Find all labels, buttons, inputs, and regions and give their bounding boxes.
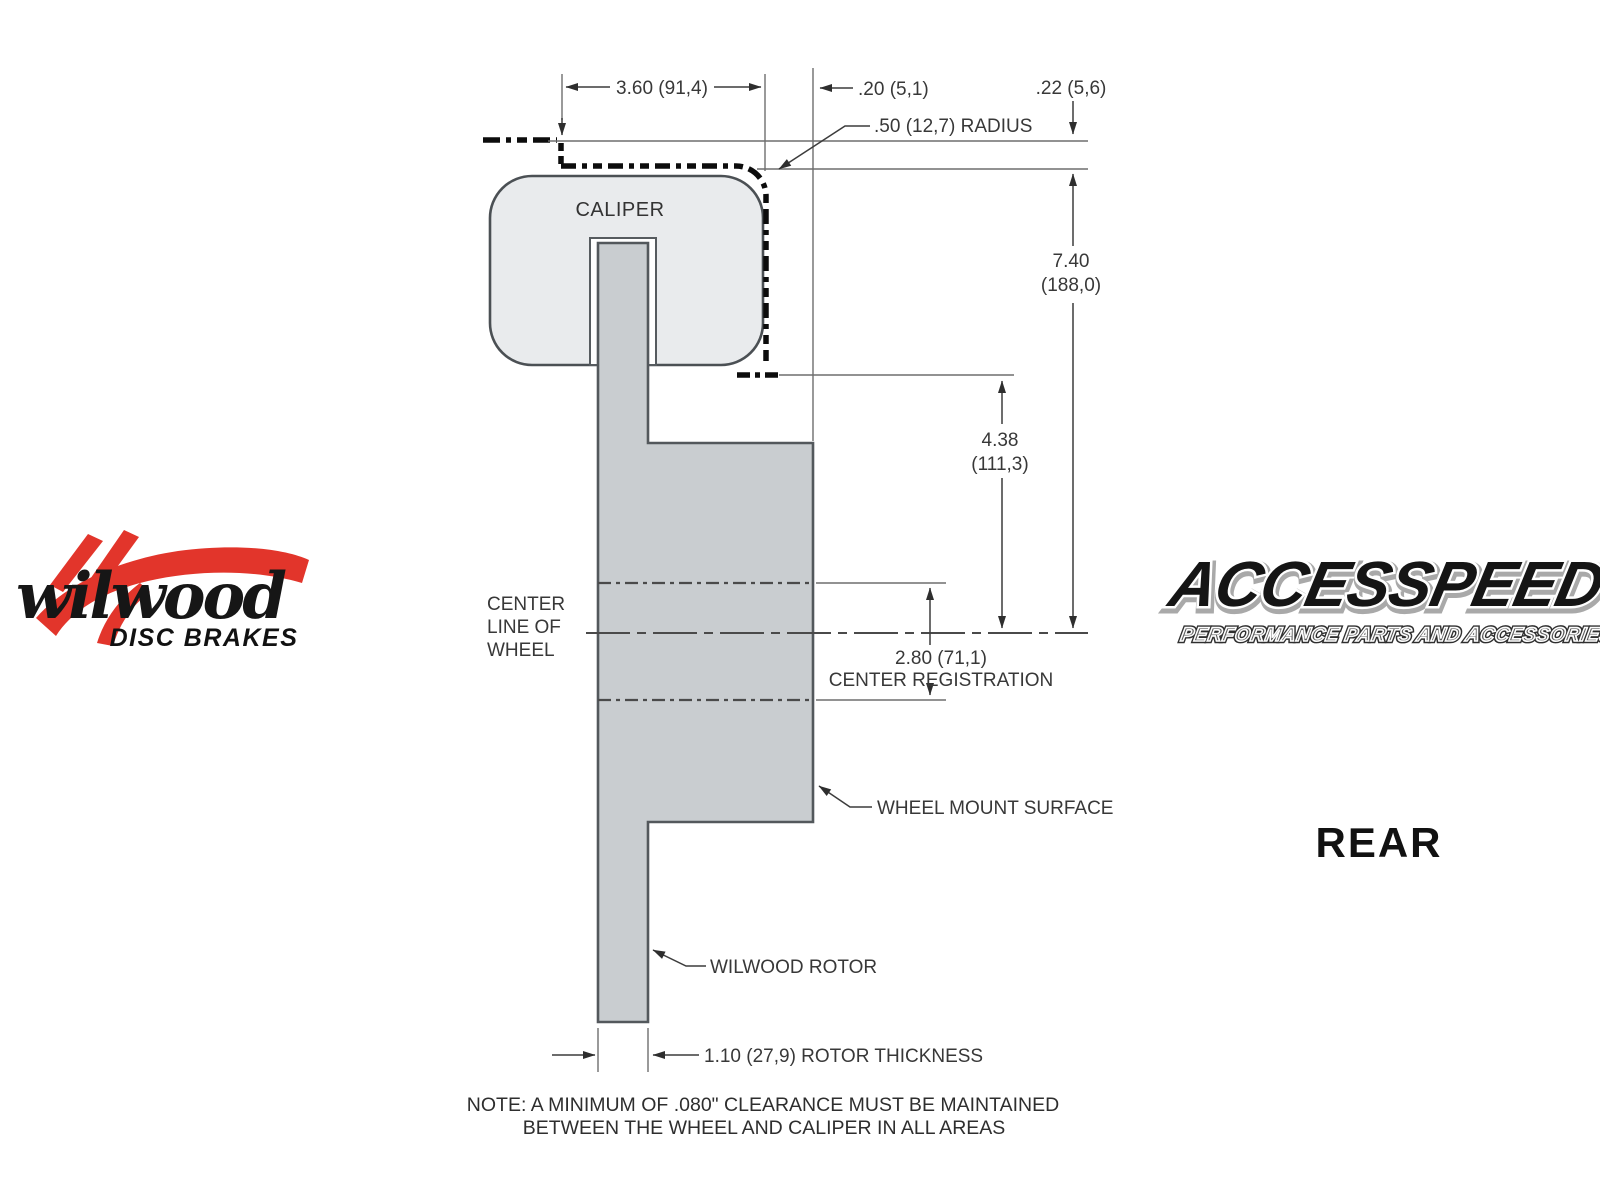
dim-corner-radius: .50 (12,7) RADIUS <box>874 116 1032 137</box>
caliper-label: CALIPER <box>575 199 664 221</box>
rotor-leader <box>653 950 706 966</box>
centerline-label-1: CENTER <box>487 594 565 615</box>
note-line-2: BETWEEN THE WHEEL AND CALIPER IN ALL ARE… <box>523 1117 1006 1139</box>
dim-side-clearance: .20 (5,1) <box>858 79 929 100</box>
centerline-label-3: WHEEL <box>487 640 555 661</box>
dim-caliper-width: 3.60 (91,4) <box>616 78 708 99</box>
note-line-1: NOTE: A MINIMUM OF .080" CLEARANCE MUST … <box>467 1094 1059 1116</box>
dim-registration-in: 2.80 (71,1) <box>895 648 987 669</box>
dim-overall-height-mm: (188,0) <box>1041 275 1101 296</box>
brake-diagram-page: wilwood DISC BRAKES ACCESSPEED ACCESSPEE… <box>0 0 1600 1200</box>
dim-top-clearance: .22 (5,6) <box>1036 78 1107 99</box>
wilwood-tagline-text: DISC BRAKES <box>110 624 299 652</box>
radius-leader <box>779 126 870 169</box>
dim-rotor-thickness: 1.10 (27,9) ROTOR THICKNESS <box>704 1046 983 1067</box>
accesspeed-name-text: ACCESSPEED <box>1162 548 1600 620</box>
dim-mount-depth-mm: (111,3) <box>971 454 1028 475</box>
wilwood-logo: wilwood DISC BRAKES <box>16 530 309 652</box>
view-label: REAR <box>1315 819 1442 866</box>
technical-drawing-canvas: wilwood DISC BRAKES ACCESSPEED ACCESSPEE… <box>0 0 1600 1200</box>
accesspeed-logo: ACCESSPEED ACCESSPEED ACCESSPEED PERFORM… <box>1161 548 1600 646</box>
wheel-mount-surface-label: WHEEL MOUNT SURFACE <box>877 798 1113 819</box>
dim-mount-depth-in: 4.38 <box>982 430 1019 451</box>
centerline-label-2: LINE OF <box>487 617 561 638</box>
accesspeed-tagline-text: PERFORMANCE PARTS AND ACCESSORIES <box>1179 624 1600 646</box>
wilwood-script-text: wilwood <box>16 559 286 634</box>
wheel-mount-leader <box>819 786 872 807</box>
dim-registration-label: CENTER REGISTRATION <box>829 670 1054 691</box>
dim-overall-height-in: 7.40 <box>1053 251 1090 272</box>
wilwood-rotor-label: WILWOOD ROTOR <box>710 957 877 978</box>
